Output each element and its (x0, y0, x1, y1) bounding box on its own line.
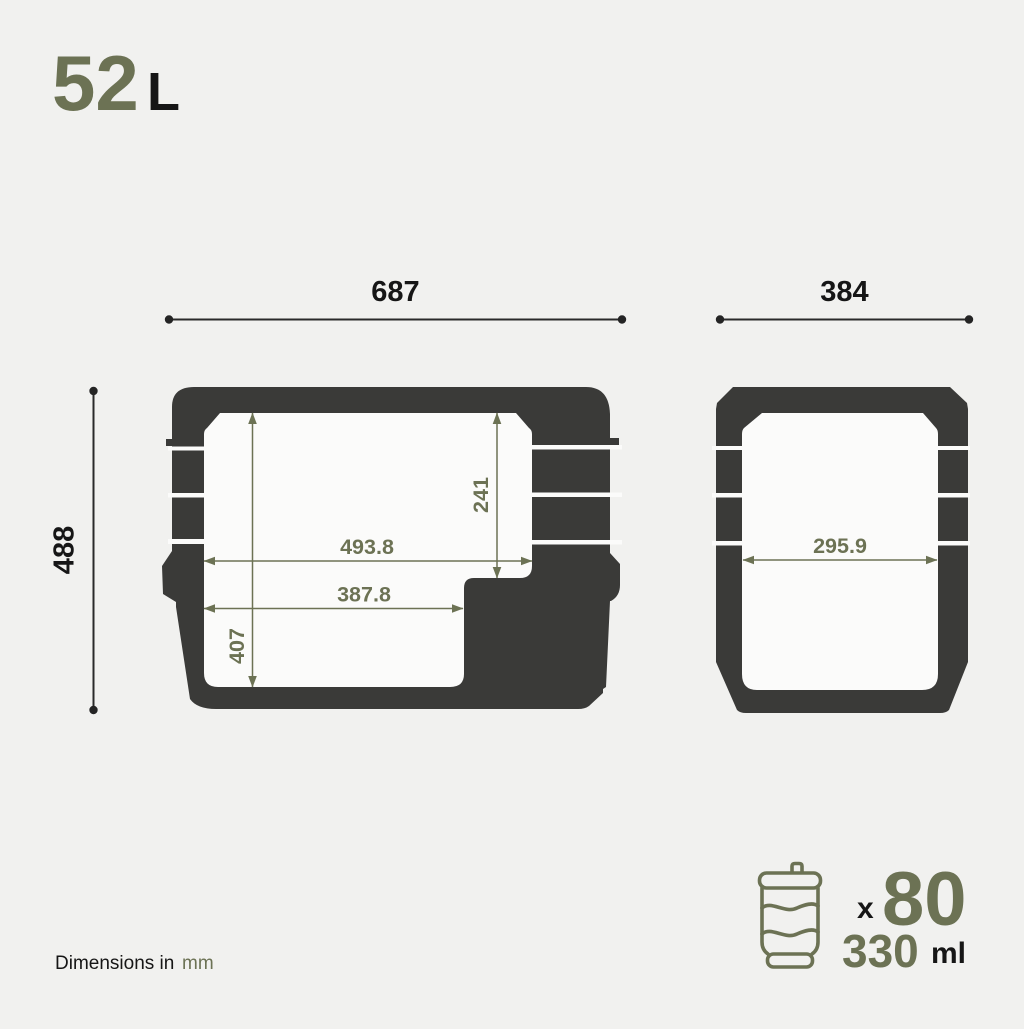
dimension-label: 241 (469, 477, 493, 513)
dimension-endpoint (965, 315, 973, 323)
dimension-label: 687 (371, 276, 419, 308)
footer-label: Dimensions in (55, 953, 174, 974)
can-volume: 330 (842, 925, 919, 977)
wall-gap-line (936, 446, 970, 450)
wall-gap-line (530, 540, 622, 545)
dimensions-diagram: 52 L 687 384 488 (0, 0, 1024, 1024)
wall-gap-line (530, 493, 622, 498)
wall-gap-line (936, 541, 970, 546)
dimension-endpoint (618, 315, 626, 323)
wall-gap-line (712, 493, 744, 498)
dimension-endpoint (716, 315, 724, 323)
side-view: 407 241 493.8 387.8 (162, 387, 622, 709)
capacity-unit: L (147, 62, 180, 122)
wall-gap-line (712, 541, 744, 546)
dimension-label: 488 (49, 526, 81, 574)
dimension-label: 295.9 (813, 534, 867, 558)
dimension-label: 384 (820, 276, 868, 308)
footer-note: Dimensions in mm (55, 953, 214, 974)
can-volume-unit: ml (931, 937, 966, 970)
footer-unit: mm (182, 953, 214, 974)
end-view: 295.9 (712, 387, 970, 713)
dimension-label: 407 (225, 628, 249, 664)
wall-gap-line (712, 446, 744, 450)
wall-gap-line (936, 493, 970, 498)
wall-gap-line (168, 447, 206, 451)
wall-gap-line (168, 539, 206, 544)
dimension-label: 387.8 (337, 583, 391, 607)
dimension-endpoint (89, 706, 97, 714)
dimension-endpoint (89, 387, 97, 395)
dimension-endpoint (165, 315, 173, 323)
multiplier-label: x (857, 892, 874, 925)
capacity-value: 52 (52, 39, 139, 127)
dimension-label: 493.8 (340, 535, 394, 559)
wall-gap-line (530, 445, 622, 450)
wall-gap-line (168, 493, 206, 498)
